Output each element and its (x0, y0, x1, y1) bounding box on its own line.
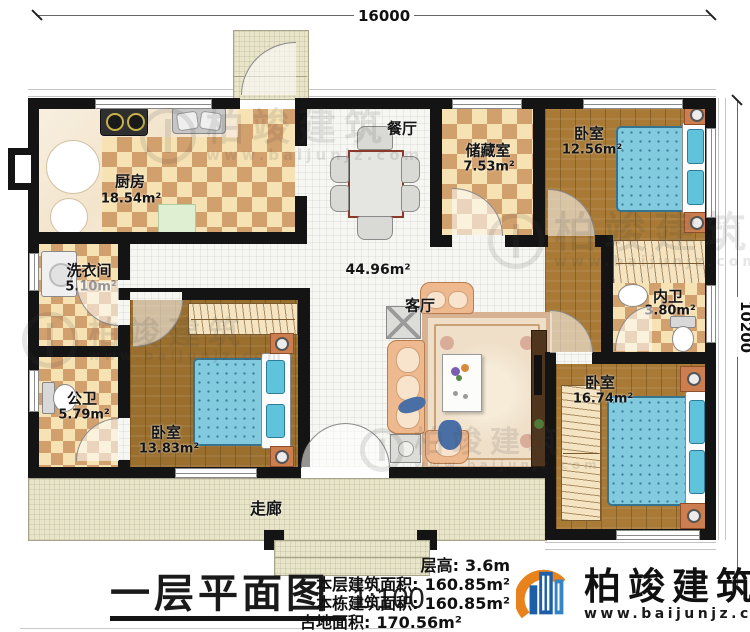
stat-label: 本层建筑面积: (316, 575, 418, 594)
stat-row: 本层建筑面积: 160.85m² (300, 575, 510, 594)
pillow (687, 170, 704, 205)
kitchen-floor-tile (238, 109, 295, 139)
room-area: 16.74m² (573, 392, 633, 407)
wall (533, 98, 545, 247)
chimney (8, 148, 38, 190)
floor-plan: 16000 10200 厨房 18.54m² 洗衣间 5.10m² 公卫 5.7… (0, 0, 750, 632)
stat-row: 层高: 3.6m (300, 556, 510, 575)
lamp-icon (398, 441, 414, 457)
flower-icon (461, 364, 469, 372)
sink-basin (176, 111, 199, 132)
room-label: 餐厅 (387, 118, 417, 139)
dining-chair (330, 185, 349, 212)
sofa-cushion (448, 291, 468, 309)
pillow (266, 404, 285, 438)
wall (28, 346, 118, 357)
wall (545, 352, 556, 540)
room-label: 卧室 (585, 372, 615, 393)
wall (130, 288, 182, 292)
stat-value: 170.56m² (370, 613, 461, 632)
wall (389, 467, 556, 478)
wall (430, 98, 442, 247)
stove (100, 107, 148, 136)
counter-basin (46, 140, 100, 194)
wall (28, 232, 307, 244)
pillow (687, 129, 704, 164)
bed (616, 126, 690, 212)
pillow (266, 360, 285, 394)
wall (118, 325, 130, 418)
dining-chair (357, 216, 393, 240)
wall (298, 288, 310, 467)
wall (118, 460, 130, 467)
stat-value: 160.85m² (419, 575, 510, 594)
cutting-board (158, 204, 196, 234)
wall (182, 288, 310, 300)
window (706, 285, 716, 343)
eave-line (307, 89, 716, 97)
room-area: 12.56m² (562, 143, 622, 158)
nightstand (680, 366, 708, 392)
burner-icon (127, 113, 145, 131)
nightstand (680, 503, 708, 529)
pillow (689, 450, 705, 494)
window (29, 370, 39, 412)
table-dot (453, 391, 458, 396)
dimension-height-label: 10200 (737, 297, 750, 357)
room-label: 卧室 (574, 123, 604, 144)
window (95, 99, 212, 109)
burner-icon (106, 113, 124, 131)
plant-icon (534, 419, 544, 429)
wall (601, 283, 613, 318)
room-area: 13.83m² (139, 442, 199, 457)
wall (592, 352, 716, 364)
window (616, 530, 700, 540)
brand-block: 柏竣建筑 www.baijunjz.com (516, 566, 750, 624)
stat-row: 占地面积: 170.56m² (300, 613, 510, 632)
room-area: 44.96m² (345, 262, 410, 278)
room-label: 储藏室 (465, 140, 510, 161)
bedroom-sw-closet (188, 303, 298, 335)
eave-line (545, 542, 716, 550)
sofa-long (387, 340, 425, 434)
room-label: 公卫 (67, 388, 97, 409)
wall (295, 98, 307, 146)
eave-line (718, 98, 726, 540)
bedroom-ne-wardrobe (613, 240, 707, 286)
wall (595, 235, 613, 247)
sink-basin (199, 111, 222, 132)
eave-line (28, 89, 233, 97)
wall (118, 288, 130, 300)
brand-logo-icon (516, 566, 574, 624)
room-label: 卧室 (151, 422, 181, 443)
corner-table (390, 434, 421, 463)
counter-basin (50, 198, 88, 236)
toilet-bowl (672, 326, 694, 352)
room-area: 7.53m² (463, 160, 514, 175)
window (452, 99, 522, 109)
dining-chair (330, 156, 349, 183)
nightstand (270, 333, 294, 354)
flower-icon (456, 375, 462, 381)
wall (118, 244, 130, 280)
bed (193, 358, 269, 446)
wall (430, 235, 452, 247)
dining-chair (401, 156, 420, 183)
rug-medallion (440, 336, 454, 350)
brand-name: 柏竣建筑 (584, 568, 750, 607)
person-figure (438, 420, 462, 450)
bed (607, 396, 693, 506)
stat-value: 3.6m (459, 556, 510, 575)
stats-block: 层高: 3.6m 本层建筑面积: 160.85m² 本栋建筑面积: 160.85… (300, 556, 510, 632)
stat-value: 160.85m² (419, 594, 510, 613)
coffee-table (442, 354, 482, 412)
window (175, 468, 257, 478)
sofa-cushion (396, 347, 420, 373)
corridor-floor (28, 478, 547, 541)
tv-icon (534, 355, 542, 395)
wall (28, 467, 301, 478)
room-label: 客厅 (405, 295, 435, 316)
nightstand (270, 446, 294, 467)
stat-label: 占地面积: (300, 613, 370, 632)
room-area: 3.80m² (644, 304, 695, 319)
stat-label: 本栋建筑面积: (316, 594, 418, 613)
corridor-label: 走廊 (250, 495, 282, 519)
room-label: 洗衣间 (66, 260, 111, 281)
stat-row: 本栋建筑面积: 160.85m² (300, 594, 510, 613)
kitchen-sink (172, 107, 226, 134)
dining-chair (401, 185, 420, 212)
window (706, 128, 716, 218)
plan-title: 一层平面图 (110, 572, 330, 616)
table-dot (463, 394, 468, 399)
brand-website: www.baijunjz.com (584, 606, 750, 622)
dimension-width-label: 16000 (354, 7, 414, 25)
room-label: 厨房 (115, 171, 145, 192)
room-area: 18.54m² (101, 192, 161, 207)
dining-table (348, 150, 404, 218)
pillow (689, 400, 705, 444)
window (29, 253, 39, 291)
window (583, 99, 683, 109)
stat-label: 层高: (421, 556, 459, 575)
